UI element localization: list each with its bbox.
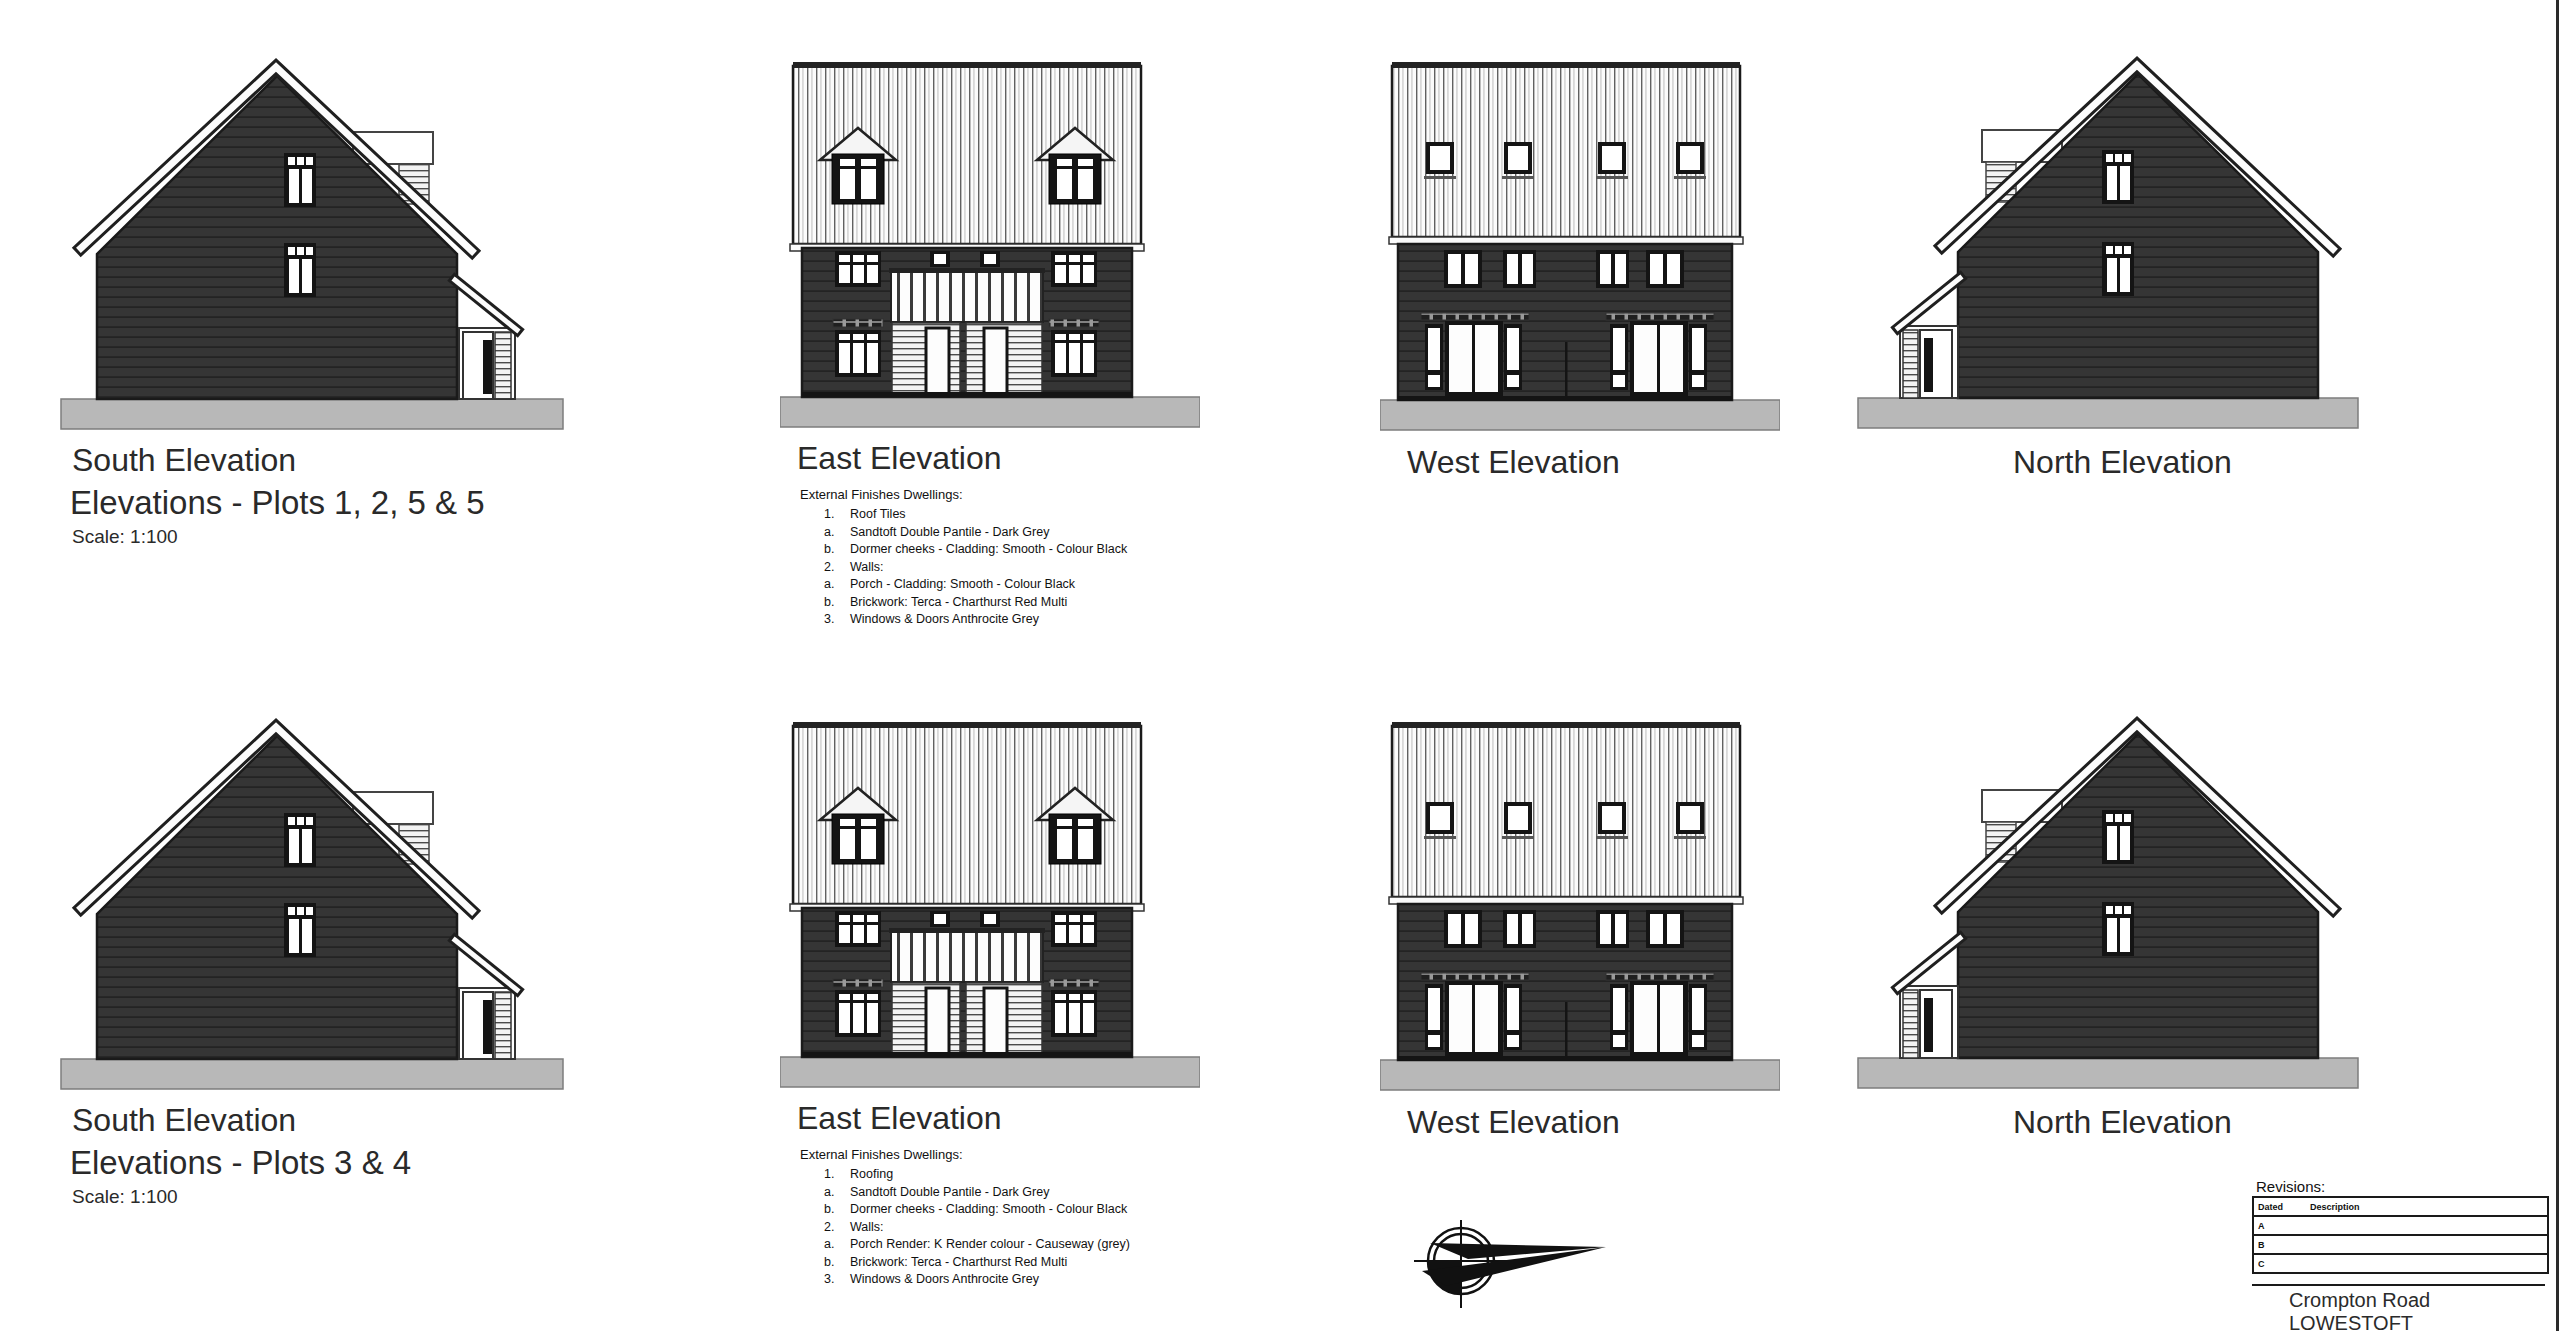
- external-finishes-notes: External Finishes Dwellings: 1.Roofing a…: [800, 1147, 1160, 1289]
- note-item: a.Porch - Cladding: Smooth - Colour Blac…: [800, 576, 1160, 594]
- south-elevation-title: South Elevation: [72, 442, 296, 479]
- south-elevation-drawing-row1: [55, 38, 615, 433]
- revisions-label: Revisions:: [2256, 1178, 2325, 1195]
- east-elevation-title: East Elevation: [797, 1100, 1002, 1137]
- north-elevation-drawing-row2: [1850, 698, 2410, 1098]
- project-town: LOWESTOFT: [2289, 1312, 2413, 1331]
- notes-heading: External Finishes Dwellings:: [800, 1147, 1160, 1162]
- note-item: b.Brickwork: Terca - Charthurst Red Mult…: [800, 1254, 1160, 1272]
- scale-note: Scale: 1:100: [72, 526, 178, 548]
- east-elevation-drawing-row2: [780, 702, 1200, 1102]
- west-elevation-title: West Elevation: [1407, 1104, 1620, 1141]
- revision-row-c: C: [2254, 1255, 2547, 1272]
- note-item: b.Brickwork: Terca - Charthurst Red Mult…: [800, 594, 1160, 612]
- north-elevation-title: North Elevation: [2013, 1104, 2232, 1141]
- column-description: Description: [2310, 1202, 2360, 1212]
- note-item: a.Sandtoft Double Pantile - Dark Grey: [800, 524, 1160, 542]
- external-finishes-notes: External Finishes Dwellings: 1.Roof Tile…: [800, 487, 1160, 629]
- east-elevation-title: East Elevation: [797, 440, 1002, 477]
- note-item: a.Sandtoft Double Pantile - Dark Grey: [800, 1184, 1160, 1202]
- west-elevation-title: West Elevation: [1407, 444, 1620, 481]
- note-item: b.Dormer cheeks - Cladding: Smooth - Col…: [800, 1201, 1160, 1219]
- revision-row-b: B: [2254, 1236, 2547, 1255]
- sheet-border-right: [2556, 0, 2559, 1331]
- north-elevation-title: North Elevation: [2013, 444, 2232, 481]
- plots-subtitle: Elevations - Plots 3 & 4: [70, 1144, 411, 1182]
- note-item: 2.Walls:: [800, 1219, 1160, 1237]
- revisions-table: Dated Description A B C: [2252, 1196, 2549, 1274]
- scale-note: Scale: 1:100: [72, 1186, 178, 1208]
- east-elevation-drawing-row1: [780, 42, 1200, 442]
- west-elevation-drawing-row2: [1380, 702, 1780, 1102]
- west-elevation-drawing-row1: [1380, 42, 1780, 442]
- note-item: b.Dormer cheeks - Cladding: Smooth - Col…: [800, 541, 1160, 559]
- revisions-table-header: Dated Description: [2254, 1198, 2547, 1217]
- north-arrow-compass-icon: [1406, 1216, 1616, 1316]
- note-item: a.Porch Render: K Render colour - Causew…: [800, 1236, 1160, 1254]
- south-elevation-drawing-row2: [55, 698, 615, 1093]
- column-dated: Dated: [2254, 1202, 2310, 1212]
- elevation-drawing-sheet: South Elevation Elevations - Plots 1, 2,…: [0, 0, 2560, 1331]
- revision-row-a: A: [2254, 1217, 2547, 1236]
- note-item: 1.Roofing: [800, 1166, 1160, 1184]
- project-address: Crompton Road: [2289, 1289, 2430, 1312]
- note-item: 3.Windows & Doors Anthrocite Grey: [800, 1271, 1160, 1289]
- south-elevation-title: South Elevation: [72, 1102, 296, 1139]
- plots-subtitle: Elevations - Plots 1, 2, 5 & 5: [70, 484, 485, 522]
- note-item: 3.Windows & Doors Anthrocite Grey: [800, 611, 1160, 629]
- notes-heading: External Finishes Dwellings:: [800, 487, 1160, 502]
- title-block-divider: [2252, 1284, 2545, 1286]
- north-elevation-drawing-row1: [1850, 38, 2410, 438]
- note-item: 2.Walls:: [800, 559, 1160, 577]
- note-item: 1.Roof Tiles: [800, 506, 1160, 524]
